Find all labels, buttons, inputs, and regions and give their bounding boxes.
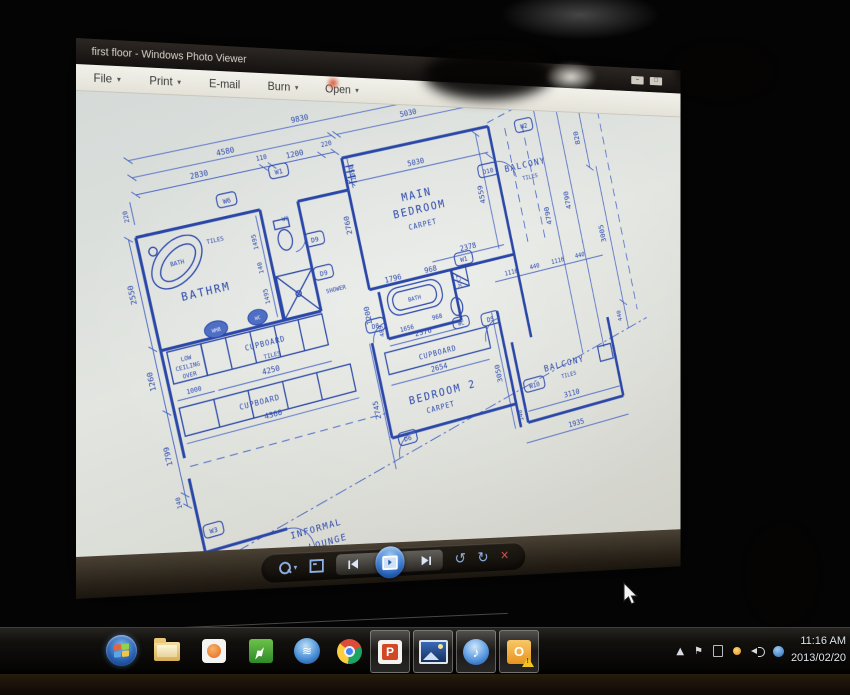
- balcony1-label: BALCONY: [504, 156, 547, 175]
- warning-badge-icon: [522, 657, 534, 667]
- mouse-cursor: [622, 582, 640, 606]
- powerpoint-icon: P: [378, 640, 402, 664]
- dim: 4790: [542, 206, 554, 226]
- previous-icon: [351, 559, 358, 569]
- photo-viewer-icon: [419, 640, 448, 664]
- tag-w3: W3: [209, 525, 219, 536]
- dim: 440: [529, 262, 540, 272]
- dim: 1200: [285, 147, 305, 160]
- dim: 3005: [597, 224, 608, 244]
- taskbar-item-chrome[interactable]: [334, 637, 364, 665]
- bath-label: BATH: [170, 258, 186, 268]
- menu-print-label: Print: [149, 73, 172, 88]
- glare-highlight: [545, 62, 597, 92]
- music-note-glyph: ♪: [473, 644, 480, 660]
- tag-d5: D5: [486, 314, 495, 324]
- dim: 1495: [261, 288, 271, 305]
- next-icon: [422, 556, 429, 566]
- photo-display-area: WHB WC: [76, 91, 680, 557]
- floorplan-photo: WHB WC: [76, 91, 680, 557]
- glare-shadow: [676, 50, 766, 92]
- taskbar-item-photo-viewer[interactable]: [413, 630, 453, 673]
- projector-glow: [500, 0, 660, 40]
- volume-icon[interactable]: [751, 646, 763, 656]
- taskbar-clock[interactable]: 11:16 AM 2013/02/20: [784, 633, 846, 667]
- carpet-label: CARPET: [408, 217, 438, 232]
- taskbar-item-explorer[interactable]: [152, 637, 182, 665]
- tray-expand-button[interactable]: ▲: [676, 646, 684, 657]
- fit-to-window-icon: [310, 559, 324, 573]
- hand-shadow: [752, 530, 812, 620]
- folder-icon: [154, 642, 180, 661]
- dim: 968: [431, 312, 443, 322]
- tag-d9: D9: [310, 235, 319, 245]
- dim: 1050: [347, 164, 357, 181]
- globe-icon: ≋: [294, 638, 320, 664]
- dim: 140: [174, 496, 184, 510]
- windows-logo-icon: [114, 643, 129, 658]
- dim: 820: [571, 130, 582, 145]
- play-slideshow-button[interactable]: [375, 546, 404, 579]
- dim: 2760: [342, 215, 355, 236]
- clock-time: 11:16 AM: [784, 633, 846, 650]
- previous-button[interactable]: [348, 559, 358, 569]
- bathrm-label: BATHRM: [180, 279, 232, 304]
- glare-shadow: [424, 48, 552, 100]
- window-title: first floor - Windows Photo Viewer: [92, 46, 247, 66]
- clock-date: 2013/02/20: [784, 650, 846, 667]
- dim: 1799: [161, 446, 175, 468]
- dim: 5030: [406, 155, 425, 168]
- taskbar-item-outlook[interactable]: O: [499, 630, 539, 673]
- dim: 1200: [362, 305, 374, 326]
- tag-w10: W10: [528, 379, 540, 390]
- taskbar-item-media-player[interactable]: [199, 637, 229, 665]
- chevron-down-icon: ▾: [355, 86, 359, 95]
- menu-file[interactable]: File ▾: [93, 71, 120, 86]
- media-player-icon: [202, 639, 226, 663]
- taskbar-item-itunes[interactable]: ♪: [456, 630, 496, 673]
- menu-email-label: E-mail: [209, 76, 240, 91]
- chevron-down-icon: ▾: [295, 83, 299, 92]
- tag-w2: W2: [519, 121, 528, 131]
- bath2-label: BATH: [408, 294, 422, 304]
- dim: 5030: [399, 106, 418, 119]
- taskbar-item-powerpoint[interactable]: P: [370, 630, 410, 673]
- zoom-button[interactable]: ▾: [279, 561, 297, 574]
- navigation-group: [336, 549, 443, 575]
- menu-burn-label: Burn: [268, 79, 291, 94]
- dim: 110: [255, 153, 268, 163]
- rotate-cw-button[interactable]: ↻: [477, 550, 488, 565]
- tag-d10: D10: [482, 165, 494, 176]
- shower-label: SHOWER: [326, 284, 347, 295]
- menu-print[interactable]: Print ▾: [149, 73, 181, 88]
- cupboard3-label: CUPBOARD: [418, 344, 457, 362]
- dim: 440: [574, 251, 585, 261]
- actual-size-button[interactable]: [310, 559, 324, 573]
- rotate-ccw-button[interactable]: ↺: [455, 551, 466, 566]
- dim: 4790: [561, 190, 572, 210]
- balcony2-tiles: TILES: [561, 370, 577, 380]
- tray-app-icon[interactable]: [713, 645, 723, 657]
- dim: 140: [256, 261, 266, 274]
- duct-label: DUCT: [455, 274, 464, 289]
- next-button[interactable]: [422, 556, 431, 566]
- desk-surface: [0, 672, 850, 695]
- outlook-icon: O: [507, 640, 531, 664]
- dim: 2830: [189, 168, 209, 182]
- chevron-down-icon: ▾: [117, 74, 121, 83]
- slideshow-icon: [382, 555, 397, 570]
- dim: 4559: [475, 185, 487, 205]
- globe-glyph: ≋: [302, 644, 312, 658]
- taskbar-item-network-app[interactable]: ≋: [292, 637, 322, 665]
- dim: 440: [615, 309, 623, 321]
- balcony2-label: BALCONY: [543, 354, 585, 375]
- minimize-button[interactable]: –: [631, 76, 643, 85]
- tag-w1b: W1: [459, 254, 468, 264]
- antivirus-icon: [249, 639, 273, 663]
- dim: 9830: [290, 112, 309, 125]
- tag-w6: W6: [222, 195, 232, 205]
- dim: 1495: [250, 233, 261, 250]
- photo-viewer-toolbar: ▾ ↺ ↻ ✕: [261, 542, 525, 583]
- tag-d6: D6: [403, 433, 412, 443]
- dim: 220: [121, 210, 131, 224]
- dim: 4580: [215, 144, 235, 157]
- floorplan-drawing: WHB WC: [76, 91, 680, 557]
- taskbar-item-antivirus[interactable]: [246, 637, 276, 665]
- chevron-down-icon: ▾: [177, 77, 181, 86]
- tiles-label: TILES: [206, 235, 225, 246]
- taskbar: ≋ P ♪ O ▲ ⚑ 11:16 AM 2013/02/20: [0, 627, 850, 674]
- tray-status-icon[interactable]: [733, 647, 741, 655]
- photo-viewer-window: first floor - Windows Photo Viewer – □ F…: [76, 38, 680, 598]
- dim: 2378: [459, 240, 477, 253]
- tag-w1: W1: [274, 167, 284, 177]
- action-center-flag-icon[interactable]: ⚑: [694, 646, 703, 657]
- dim: 220: [320, 139, 332, 149]
- red-reflection: [326, 76, 340, 90]
- maximize-button[interactable]: □: [650, 77, 662, 86]
- dim: 2550: [125, 284, 139, 306]
- chrome-icon: [337, 639, 362, 664]
- magnifier-icon: [279, 561, 291, 574]
- dim: 2654: [430, 360, 448, 374]
- menu-burn[interactable]: Burn ▾: [268, 79, 299, 94]
- start-button[interactable]: [106, 635, 137, 666]
- itunes-icon: ♪: [463, 639, 489, 665]
- photographed-desktop: { "window": { "title": "first floor - Wi…: [0, 0, 850, 695]
- dim: 1116: [551, 256, 565, 266]
- dim: 1116: [504, 267, 519, 278]
- menu-file-label: File: [93, 71, 112, 86]
- menu-email[interactable]: E-mail: [209, 76, 240, 91]
- dim: 2376: [414, 325, 433, 338]
- tray-network-icon[interactable]: [773, 646, 784, 657]
- delete-button[interactable]: ✕: [500, 549, 509, 564]
- system-tray: ▲ ⚑: [676, 628, 784, 674]
- balcony1-tiles: TILES: [522, 172, 539, 182]
- chevron-down-icon: ▾: [294, 563, 298, 572]
- dim: 1260: [145, 371, 159, 393]
- dim: 140: [517, 409, 526, 422]
- tag-d9b: D9: [319, 268, 328, 278]
